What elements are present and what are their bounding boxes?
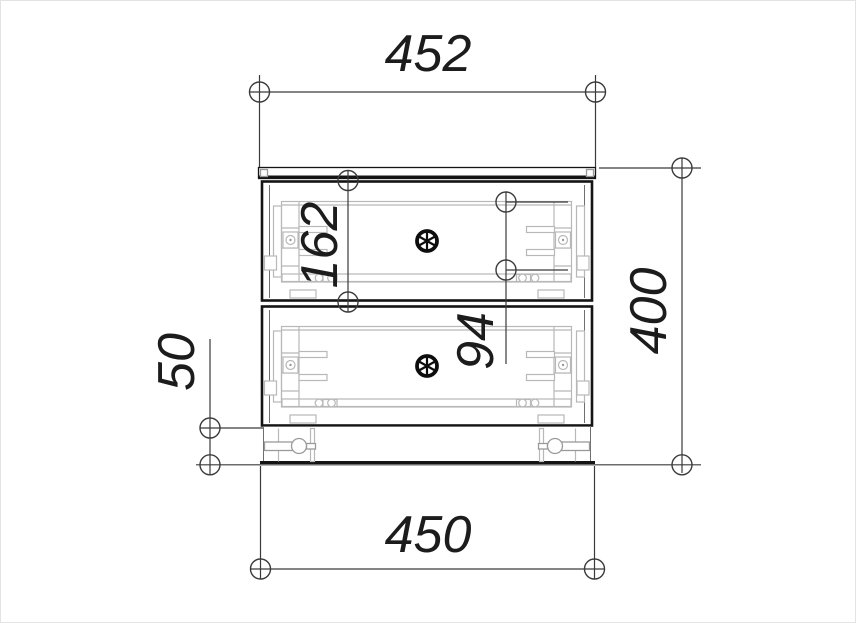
countertop-front-edge bbox=[259, 176, 596, 180]
countertop-end-cap-right bbox=[587, 170, 594, 177]
drawing-canvas: 452 450 400 162 94 50 bbox=[0, 0, 856, 623]
dimension-value-overall-height: 400 bbox=[620, 268, 678, 355]
adjustable-foot-right bbox=[539, 429, 590, 462]
dimension-overall-height: 400 bbox=[599, 158, 701, 475]
dimension-plinth-height: 50 bbox=[148, 333, 263, 475]
dimension-top-width: 452 bbox=[250, 25, 606, 167]
foot-screw-icon bbox=[292, 439, 307, 454]
dimension-value-bottom-width: 450 bbox=[385, 506, 472, 564]
dimension-value-drawer-front-height: 162 bbox=[291, 202, 349, 289]
cabinet-technical-drawing: 452 450 400 162 94 50 bbox=[1, 1, 856, 623]
dimension-bottom-width: 450 bbox=[250, 466, 605, 579]
dimension-value-plinth-height: 50 bbox=[148, 333, 206, 391]
countertop bbox=[259, 168, 596, 180]
plinth bbox=[260, 427, 595, 463]
countertop-end-cap-left bbox=[261, 170, 268, 177]
dimension-value-handle-pitch: 94 bbox=[447, 312, 505, 370]
foot-screw-icon bbox=[548, 439, 563, 454]
dimension-value-top-width: 452 bbox=[385, 25, 472, 83]
adjustable-foot-left bbox=[265, 429, 316, 462]
drawer-slide-assembly-bottom bbox=[265, 327, 590, 424]
